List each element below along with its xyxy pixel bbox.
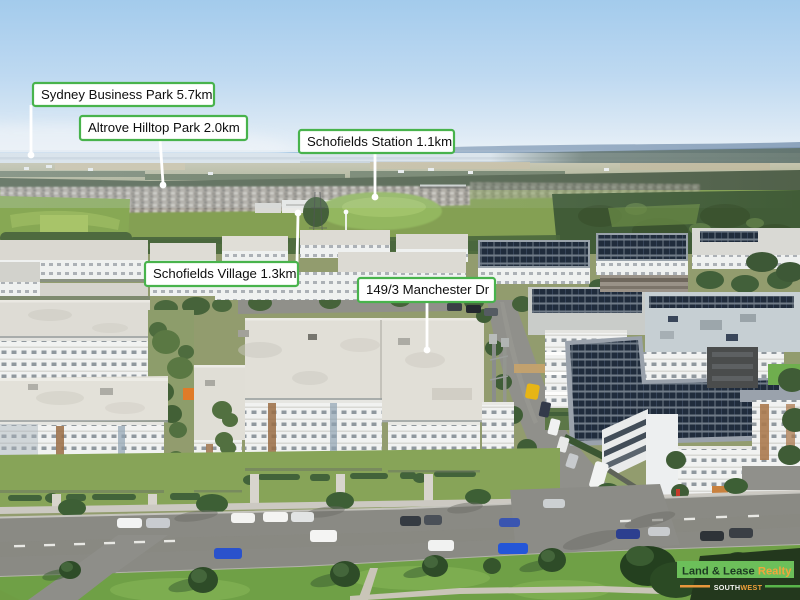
svg-text:SOUTHWEST: SOUTHWEST	[714, 583, 763, 592]
svg-text:Sydney Business Park 5.7km: Sydney Business Park 5.7km	[41, 87, 213, 102]
svg-text:Schofields Village 1.3km: Schofields Village 1.3km	[153, 266, 296, 281]
svg-text:149/3 Manchester Dr: 149/3 Manchester Dr	[366, 282, 490, 297]
svg-text:Schofields Station 1.1km: Schofields Station 1.1km	[307, 134, 452, 149]
svg-text:Land & Lease Realty: Land & Lease Realty	[682, 566, 792, 578]
svg-text:Altrove Hilltop Park 2.0km: Altrove Hilltop Park 2.0km	[88, 120, 240, 135]
